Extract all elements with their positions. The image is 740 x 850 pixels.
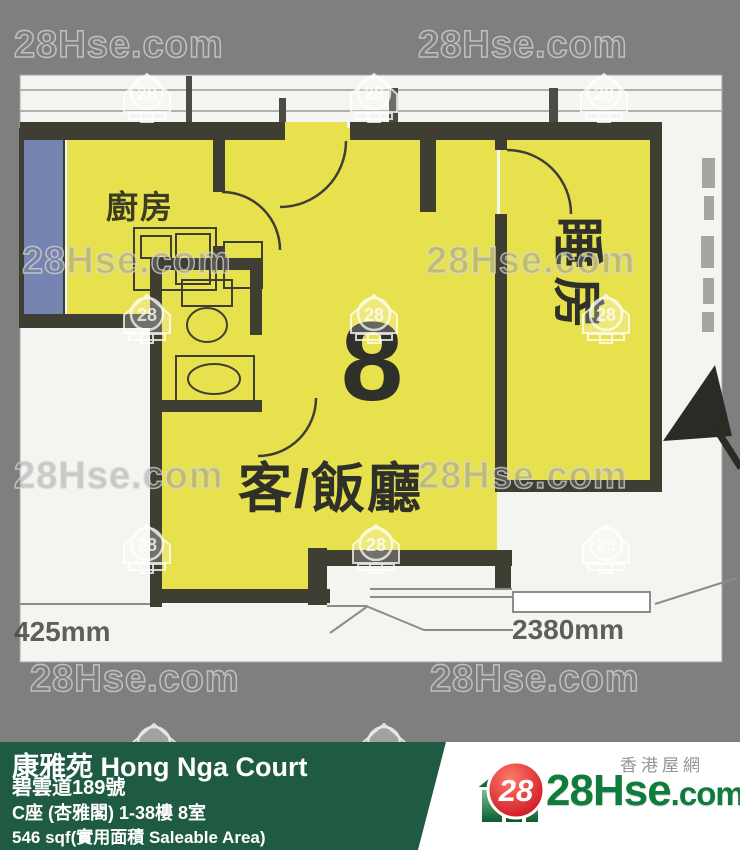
living-dining-label: 客/飯廳: [238, 444, 423, 523]
svg-text:28: 28: [594, 84, 614, 104]
property-area: 546 sqf(實用面積 Saleable Area): [12, 823, 266, 848]
site-tagline: 香港屋網: [620, 751, 704, 776]
watermark-text: 28Hse.com: [14, 455, 224, 498]
dimension-left: 425mm: [14, 616, 111, 648]
kitchen-window: [22, 132, 64, 318]
property-info-bar: 康雅苑 Hong Nga Court 碧雲道189號 C座 (杏雅閣) 1-38…: [0, 742, 470, 850]
watermark-text: 28Hse.com: [14, 24, 224, 67]
watermark-text: 28Hse.com: [418, 24, 628, 67]
watermark-text: 28Hse.com: [22, 240, 232, 283]
watermark-house-icon: 28: [578, 70, 630, 126]
kitchen-label: 廚房: [106, 182, 174, 228]
dimension-right: 2380mm: [512, 614, 624, 646]
watermark-text: 28Hse.com: [30, 658, 240, 701]
svg-text:28: 28: [364, 84, 384, 104]
svg-text:28: 28: [137, 305, 157, 325]
logo-28-badge: 28: [485, 759, 547, 821]
property-block-floor-flat: C座 (杏雅閣) 1-38樓 8室: [12, 799, 206, 825]
site-name-suffix: .com: [671, 775, 740, 813]
watermark-house-icon: 28: [348, 291, 400, 347]
property-address: 碧雲道189號: [12, 771, 125, 800]
watermark-house-icon: 28: [348, 70, 400, 126]
site-logo-panel[interactable]: 28 28Hse.com 香港屋網: [410, 742, 740, 850]
svg-text:28: 28: [366, 535, 386, 555]
svg-text:28: 28: [596, 305, 616, 325]
floorplan-page: 廚房 8 客/飯廳 睡房 425mm 2380mm 28Hse.com 28Hs…: [0, 0, 740, 850]
svg-text:28: 28: [364, 305, 384, 325]
watermark-house-icon: 28: [580, 521, 632, 577]
watermark-house-icon: 28: [350, 521, 402, 577]
svg-text:28: 28: [137, 84, 157, 104]
watermark-text: 28Hse.com: [426, 240, 636, 283]
svg-text:28: 28: [498, 773, 534, 808]
watermark-text: 28Hse.com: [430, 658, 640, 701]
svg-text:28: 28: [137, 535, 157, 555]
watermark-house-icon: 28: [580, 291, 632, 347]
watermark-house-icon: 28: [121, 291, 173, 347]
watermark-house-icon: 28: [121, 521, 173, 577]
svg-text:28: 28: [596, 535, 616, 555]
watermark-text: 28Hse.com: [418, 455, 628, 498]
watermark-house-icon: 28: [121, 70, 173, 126]
